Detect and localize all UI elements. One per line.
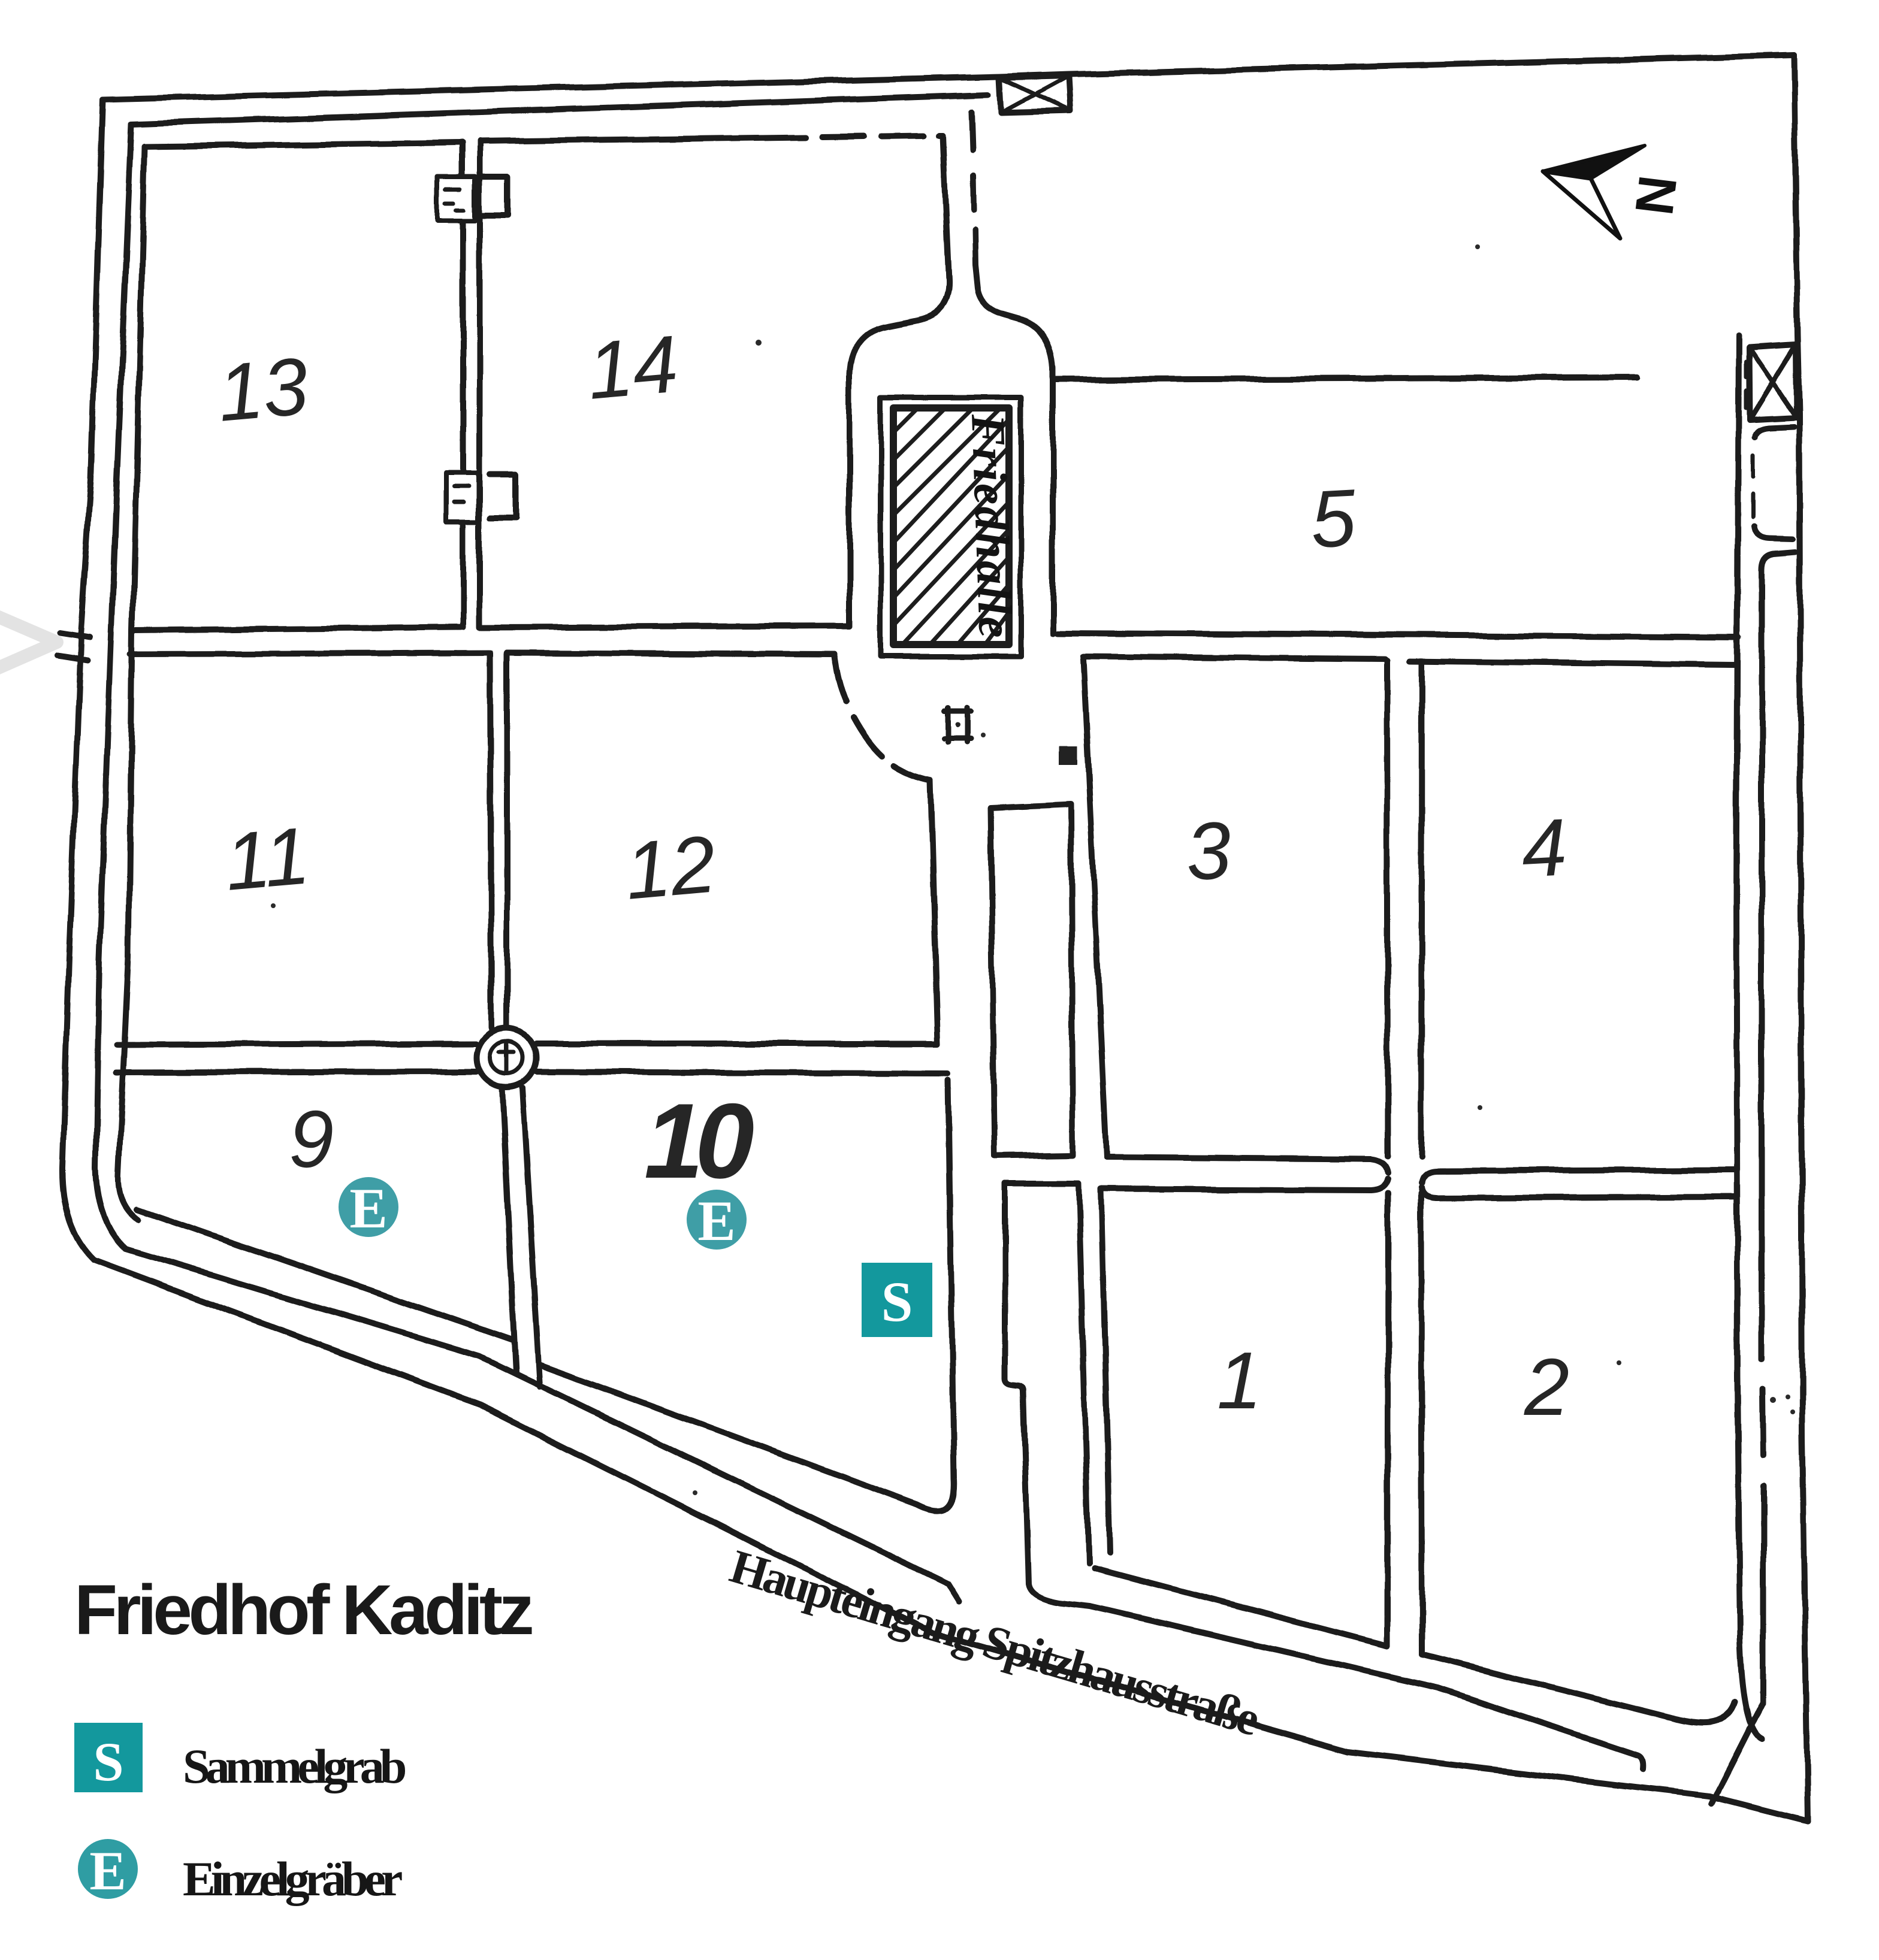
svg-text:Friedhof Kaditz: Friedhof Kaditz xyxy=(74,1571,532,1650)
svg-text:13: 13 xyxy=(214,340,312,438)
svg-text:E: E xyxy=(349,1176,387,1240)
svg-text:9: 9 xyxy=(289,1094,334,1184)
svg-text:12: 12 xyxy=(621,818,719,917)
svg-text:2: 2 xyxy=(1524,1342,1569,1432)
svg-text:1: 1 xyxy=(1217,1335,1262,1426)
svg-text:Haupteingang Spitzhausstraße: Haupteingang Spitzhausstraße xyxy=(724,1540,1265,1746)
svg-text:5: 5 xyxy=(1309,472,1359,565)
svg-text:Friedhalle: Friedhalle xyxy=(961,413,1022,641)
svg-text:S: S xyxy=(881,1270,913,1333)
svg-text:4: 4 xyxy=(1519,801,1569,894)
svg-text:E: E xyxy=(89,1840,126,1901)
svg-text:Einzelgräber: Einzelgräber xyxy=(183,1852,402,1906)
svg-text:E: E xyxy=(697,1189,735,1253)
svg-text:10: 10 xyxy=(644,1081,754,1200)
svg-text:3: 3 xyxy=(1184,804,1234,897)
svg-text:S: S xyxy=(93,1731,123,1792)
svg-text:Sammelgrab: Sammelgrab xyxy=(183,1739,406,1793)
svg-text:N: N xyxy=(1623,173,1687,219)
svg-text:11: 11 xyxy=(221,810,313,908)
svg-text:14: 14 xyxy=(584,318,681,416)
